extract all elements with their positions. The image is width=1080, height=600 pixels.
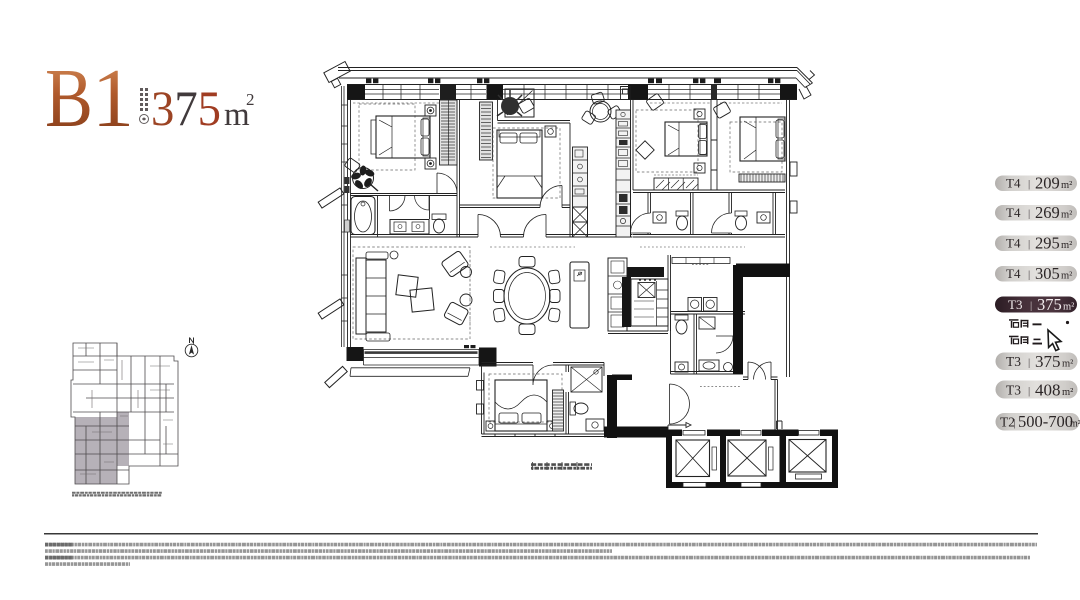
- svg-text:m²: m²: [1061, 240, 1072, 251]
- svg-text:375: 375: [1037, 295, 1062, 314]
- svg-text:T3: T3: [1006, 383, 1021, 398]
- svg-text:|: |: [1028, 208, 1030, 220]
- svg-text:|: |: [1028, 269, 1030, 281]
- svg-text:|: |: [1028, 178, 1030, 190]
- svg-text:m²: m²: [1062, 358, 1073, 369]
- svg-text:T4: T4: [1006, 266, 1021, 281]
- svg-text:375: 375: [151, 80, 221, 136]
- svg-text:408: 408: [1035, 380, 1061, 399]
- svg-text:T3: T3: [1008, 297, 1022, 312]
- svg-text:T4: T4: [1006, 205, 1021, 220]
- svg-text:|: |: [1028, 357, 1030, 369]
- svg-text:|: |: [1030, 300, 1032, 312]
- svg-text:T3: T3: [1006, 354, 1021, 369]
- svg-text:1: 1: [92, 52, 134, 145]
- svg-text:2: 2: [246, 90, 255, 109]
- svg-text:m²: m²: [1070, 419, 1080, 430]
- svg-text:m²: m²: [1062, 387, 1073, 398]
- svg-text:500-700: 500-700: [1018, 412, 1073, 431]
- svg-text:m²: m²: [1061, 271, 1072, 282]
- svg-text:|: |: [1028, 238, 1030, 250]
- svg-text:295: 295: [1035, 234, 1060, 253]
- svg-text:m²: m²: [1061, 180, 1072, 191]
- svg-text:|: |: [1014, 417, 1016, 429]
- svg-text:209: 209: [1035, 174, 1060, 193]
- svg-text:T4: T4: [1006, 176, 1021, 191]
- svg-text:269: 269: [1035, 203, 1060, 222]
- svg-text:305: 305: [1035, 264, 1060, 283]
- svg-text:m²: m²: [1061, 210, 1072, 221]
- svg-text:T4: T4: [1006, 236, 1021, 251]
- svg-text:m²: m²: [1063, 302, 1074, 313]
- svg-text:375: 375: [1035, 352, 1061, 371]
- svg-text:|: |: [1028, 385, 1030, 397]
- svg-text:B: B: [45, 52, 93, 145]
